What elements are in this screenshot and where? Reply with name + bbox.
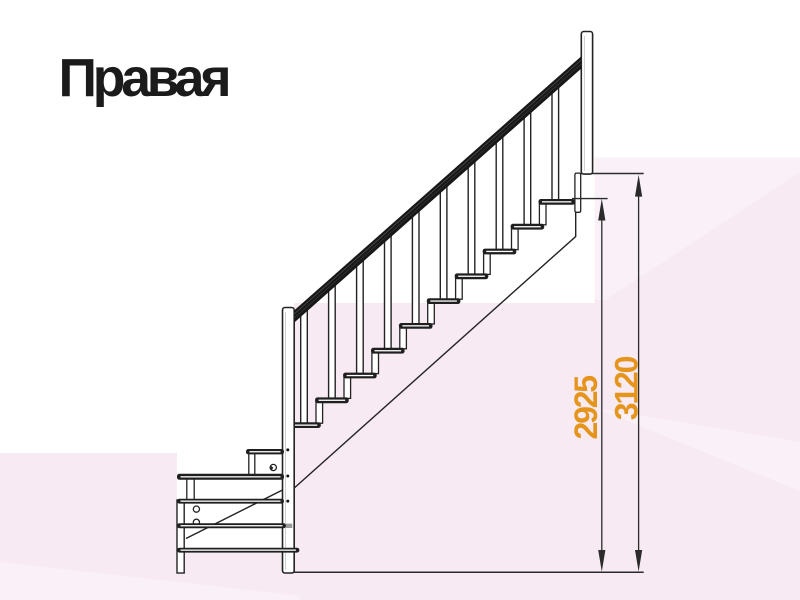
svg-text:Правая: Правая bbox=[59, 49, 229, 108]
svg-text:3120: 3120 bbox=[608, 356, 644, 420]
svg-text:2925: 2925 bbox=[568, 376, 604, 440]
